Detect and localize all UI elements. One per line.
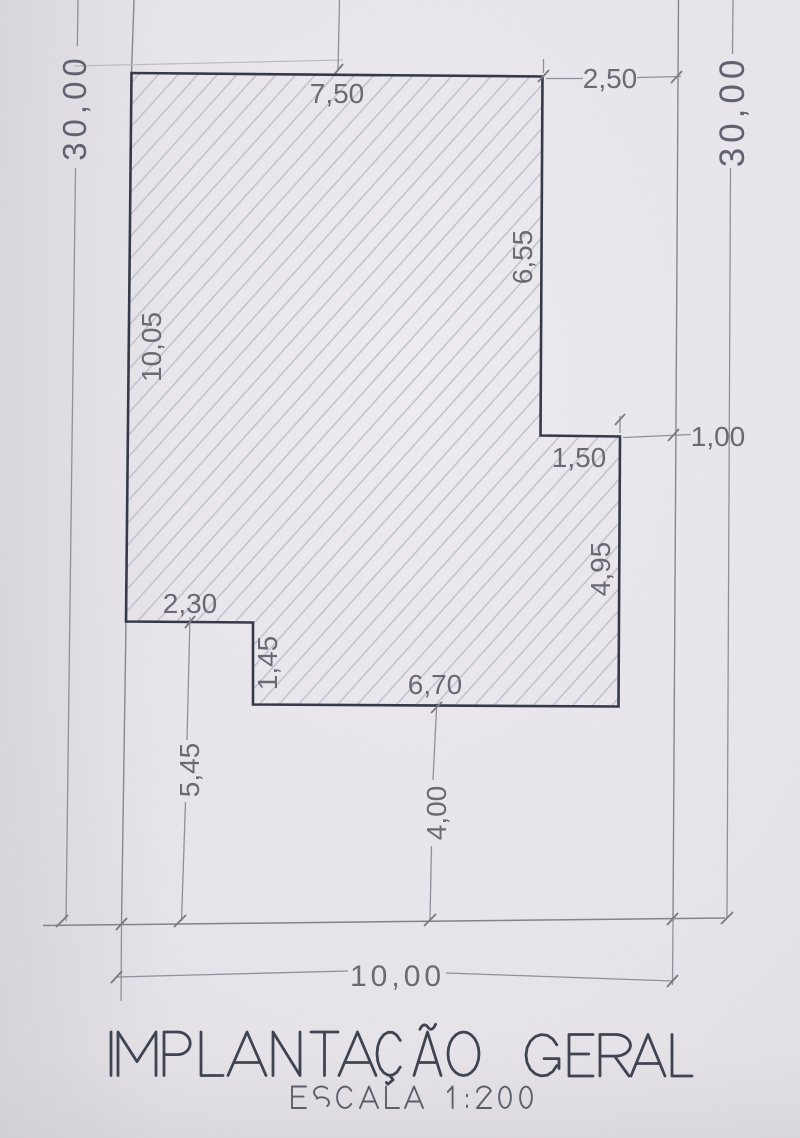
svg-text:6,55: 6,55 bbox=[507, 230, 538, 285]
svg-text:30,00: 30,00 bbox=[56, 53, 93, 161]
svg-text:1,50: 1,50 bbox=[552, 442, 607, 473]
svg-text:10,05: 10,05 bbox=[136, 312, 167, 382]
svg-text:10,00: 10,00 bbox=[350, 960, 445, 993]
svg-text:7,50: 7,50 bbox=[310, 78, 365, 109]
svg-text:30,00: 30,00 bbox=[713, 55, 752, 168]
svg-text:4,00: 4,00 bbox=[421, 786, 452, 841]
svg-text:4,95: 4,95 bbox=[585, 542, 616, 597]
svg-text:1,45: 1,45 bbox=[252, 636, 283, 691]
svg-text:6,70: 6,70 bbox=[408, 669, 463, 700]
svg-text:5,45: 5,45 bbox=[174, 743, 205, 798]
svg-text:2,30: 2,30 bbox=[163, 588, 218, 619]
svg-text:1,00: 1,00 bbox=[691, 421, 746, 452]
svg-text:2,50: 2,50 bbox=[583, 63, 638, 94]
